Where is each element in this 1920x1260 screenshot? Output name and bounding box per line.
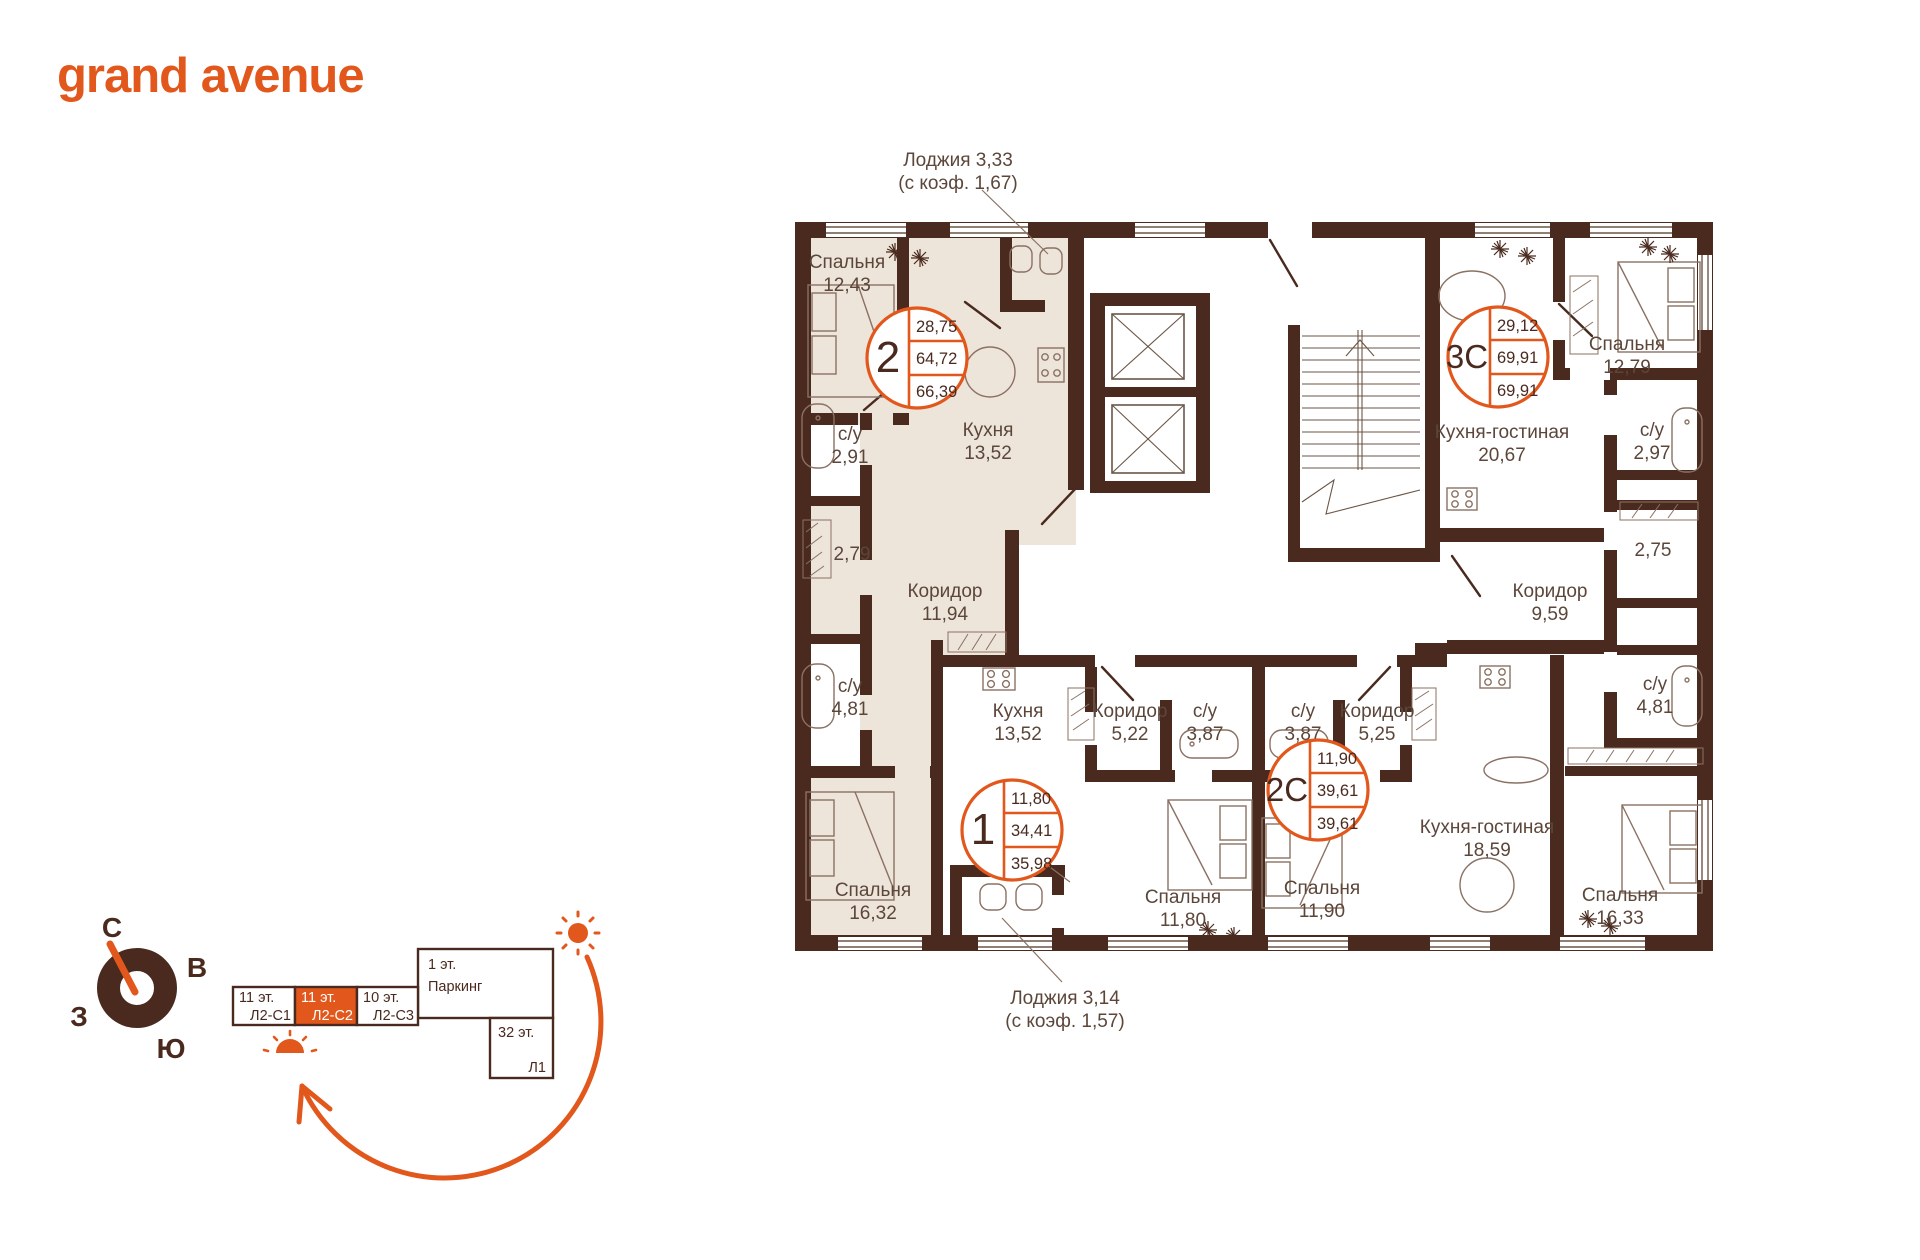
stove [1447, 488, 1477, 510]
sun-icon [557, 912, 599, 954]
loggia-annotation-top: Лоджия 3,33 (с коэф. 1,67) [898, 150, 1017, 194]
svg-text:Л1: Л1 [528, 1060, 546, 1076]
svg-text:Спальня: Спальня [1145, 887, 1221, 908]
unit-badge-1[interactable]: 1 11,80 34,41 35,98 [962, 780, 1062, 880]
room-label: Коридор9,59 [1512, 581, 1587, 625]
svg-text:с/у: с/у [1193, 701, 1218, 722]
svg-text:2С: 2С [1266, 771, 1308, 808]
svg-text:11,80: 11,80 [1160, 910, 1206, 931]
svg-text:69,91: 69,91 [1497, 382, 1538, 400]
svg-text:34,41: 34,41 [1011, 822, 1052, 840]
svg-text:Спальня: Спальня [1589, 334, 1665, 355]
page-canvas: Лоджия 3,33 (с коэф. 1,67) Лоджия 3,14 (… [0, 0, 1920, 1260]
room-label: Спальня11,80 [1145, 887, 1221, 931]
room-label: Спальня16,33 [1582, 885, 1658, 929]
svg-text:(с коэф. 1,67): (с коэф. 1,67) [898, 173, 1017, 194]
svg-text:29,12: 29,12 [1497, 317, 1538, 335]
svg-text:Спальня: Спальня [835, 880, 911, 901]
room-label: 2,75 [1635, 540, 1672, 561]
room-label: Кухня-гостиная18,59 [1420, 817, 1554, 861]
svg-text:2,91: 2,91 [832, 447, 869, 468]
svg-text:28,75: 28,75 [916, 318, 957, 336]
svg-text:13,52: 13,52 [964, 443, 1012, 464]
svg-text:4,81: 4,81 [832, 699, 869, 720]
room-label: с/у3,87 [1187, 701, 1224, 745]
svg-text:66,39: 66,39 [916, 383, 957, 401]
svg-text:11,94: 11,94 [922, 604, 969, 625]
compass: С В З Ю [70, 912, 207, 1064]
svg-text:16,33: 16,33 [1596, 908, 1644, 929]
svg-text:с/у: с/у [838, 676, 863, 697]
svg-text:Кухня: Кухня [993, 701, 1044, 722]
dining-table [1484, 757, 1548, 783]
svg-text:Кухня-гостиная: Кухня-гостиная [1420, 817, 1554, 838]
svg-text:Спальня: Спальня [1582, 885, 1658, 906]
svg-text:(с коэф. 1,57): (с коэф. 1,57) [1005, 1011, 1124, 1032]
bed [1168, 800, 1252, 890]
room-label: Кухня-гостиная20,67 [1435, 422, 1569, 466]
svg-text:с/у: с/у [1643, 674, 1668, 695]
svg-text:2,79: 2,79 [834, 544, 871, 565]
compass-south: Ю [157, 1033, 186, 1064]
svg-text:35,98: 35,98 [1011, 855, 1052, 873]
building-scheme: 1 эт. Паркинг 11 эт. Л2-С1 11 эт. Л2-С2 … [233, 912, 601, 1178]
room-label: с/у4,81 [1637, 674, 1674, 718]
svg-text:32 эт.: 32 эт. [498, 1025, 534, 1041]
floor-plan: Лоджия 3,33 (с коэф. 1,67) Лоджия 3,14 (… [795, 150, 1713, 1032]
svg-text:9,59: 9,59 [1532, 604, 1569, 625]
svg-text:3С: 3С [1446, 338, 1488, 375]
wardrobe [1412, 688, 1436, 740]
plant-icon [1639, 238, 1679, 263]
svg-text:1: 1 [971, 805, 995, 854]
room-label: 2,79 [834, 544, 871, 565]
stove [983, 668, 1015, 690]
svg-text:Лоджия 3,33: Лоджия 3,33 [903, 150, 1013, 171]
svg-text:3,87: 3,87 [1187, 724, 1224, 745]
svg-text:39,61: 39,61 [1317, 782, 1358, 800]
unit-badge-2[interactable]: 2 28,75 64,72 66,39 [867, 308, 967, 408]
svg-text:5,22: 5,22 [1112, 724, 1149, 745]
svg-text:2,97: 2,97 [1634, 443, 1671, 464]
svg-text:11 эт.: 11 эт. [301, 990, 336, 1006]
scheme-tower-box[interactable]: 32 эт. Л1 [490, 1018, 553, 1078]
svg-text:4,81: 4,81 [1637, 697, 1674, 718]
svg-text:Л2-С3: Л2-С3 [373, 1008, 414, 1024]
svg-text:69,91: 69,91 [1497, 349, 1538, 367]
svg-text:20,67: 20,67 [1478, 445, 1526, 466]
svg-text:11,80: 11,80 [1011, 790, 1051, 808]
svg-text:11 эт.: 11 эт. [239, 990, 274, 1006]
svg-text:2,75: 2,75 [1635, 540, 1672, 561]
svg-text:18,59: 18,59 [1463, 840, 1511, 861]
svg-text:с/у: с/у [1640, 420, 1665, 441]
svg-text:10 эт.: 10 эт. [363, 990, 399, 1006]
room-label: с/у3,87 [1285, 701, 1322, 745]
svg-text:Лоджия 3,14: Лоджия 3,14 [1010, 988, 1120, 1009]
svg-text:Коридор: Коридор [1339, 701, 1414, 722]
bed [1622, 805, 1702, 893]
unit-badge-2c[interactable]: 2С 11,90 39,61 39,61 [1266, 740, 1368, 840]
svg-text:11,90: 11,90 [1317, 750, 1357, 768]
unit-badge-3c[interactable]: 3С 29,12 69,91 69,91 [1446, 307, 1548, 407]
room-label: Кухня13,52 [993, 701, 1044, 745]
svg-text:Паркинг: Паркинг [428, 979, 482, 995]
svg-text:39,61: 39,61 [1317, 815, 1358, 833]
svg-text:Л2-С1: Л2-С1 [250, 1008, 291, 1024]
staircase [1302, 330, 1420, 514]
svg-text:Коридор: Коридор [907, 581, 982, 602]
plant-icon [1491, 240, 1536, 265]
svg-text:13,52: 13,52 [994, 724, 1042, 745]
svg-text:с/у: с/у [1291, 701, 1316, 722]
compass-east: В [187, 952, 207, 983]
svg-text:Коридор: Коридор [1512, 581, 1587, 602]
svg-text:Кухня-гостиная: Кухня-гостиная [1435, 422, 1569, 443]
svg-text:Л2-С2: Л2-С2 [312, 1008, 353, 1024]
stove [1480, 666, 1510, 688]
svg-text:5,25: 5,25 [1359, 724, 1396, 745]
loggia-annotation-bottom: Лоджия 3,14 (с коэф. 1,57) [1005, 988, 1124, 1032]
svg-text:1 эт.: 1 эт. [428, 957, 456, 973]
scheme-cell-l2-c1[interactable]: 11 эт. Л2-С1 [233, 987, 295, 1025]
svg-text:2: 2 [876, 333, 900, 382]
svg-text:Коридор: Коридор [1092, 701, 1167, 722]
svg-text:Спальня: Спальня [809, 252, 885, 273]
svg-text:Кухня: Кухня [963, 420, 1014, 441]
scheme-cell-l2-c2-active[interactable]: 11 эт. Л2-С2 [295, 987, 357, 1025]
svg-text:12,43: 12,43 [823, 275, 871, 296]
armchair [1460, 858, 1514, 912]
wardrobe [1568, 748, 1703, 764]
svg-text:12,79: 12,79 [1603, 357, 1651, 378]
svg-text:с/у: с/у [838, 424, 863, 445]
chair [980, 884, 1006, 910]
room-label: Спальня11,90 [1284, 878, 1360, 922]
svg-text:64,72: 64,72 [916, 350, 957, 368]
svg-text:Спальня: Спальня [1284, 878, 1360, 899]
sunset-icon [264, 1031, 316, 1053]
room-label: Коридор5,25 [1339, 701, 1414, 745]
scheme-cell-l2-c3[interactable]: 10 эт. Л2-С3 [357, 987, 418, 1025]
room-label: Коридор5,22 [1092, 701, 1167, 745]
svg-text:16,32: 16,32 [849, 903, 897, 924]
compass-west: З [70, 1001, 88, 1032]
compass-north: С [102, 912, 122, 943]
chair [1016, 884, 1042, 910]
room-label: с/у2,97 [1634, 420, 1671, 464]
svg-text:11,90: 11,90 [1299, 901, 1345, 922]
